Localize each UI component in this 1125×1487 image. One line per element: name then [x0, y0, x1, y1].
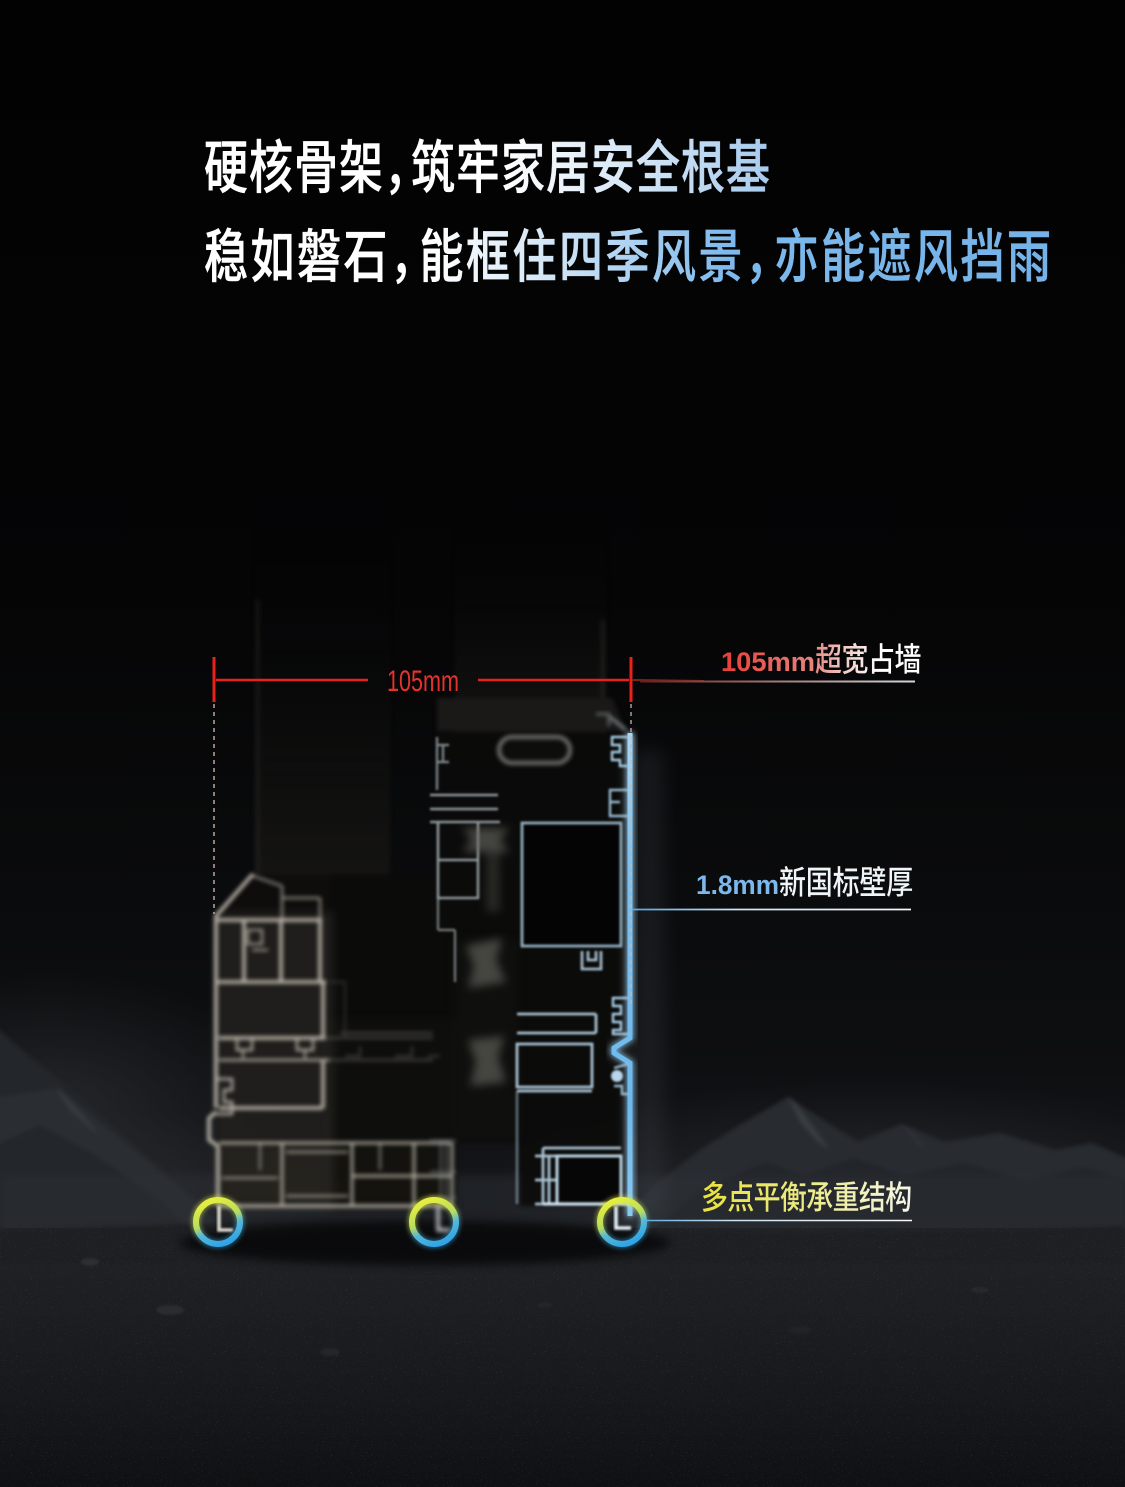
svg-text:105mm: 105mm: [387, 665, 459, 698]
svg-text:1.8mm: 1.8mm: [696, 870, 779, 900]
